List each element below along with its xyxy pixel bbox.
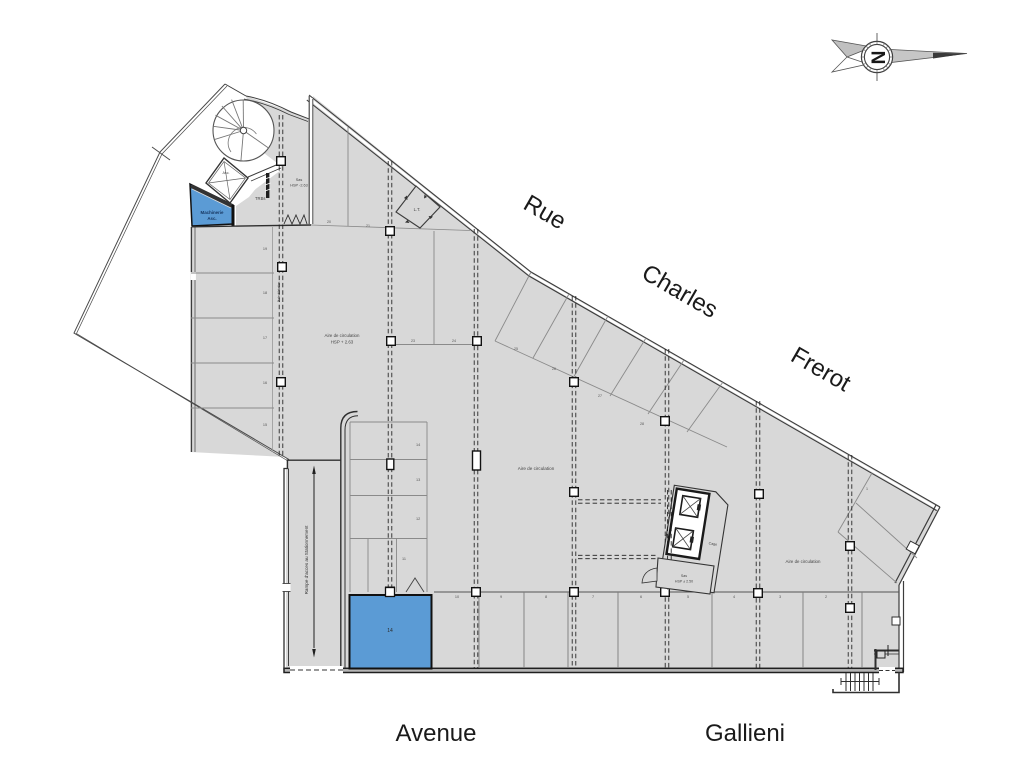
svg-text:25: 25 — [514, 347, 518, 351]
svg-text:Asc.: Asc. — [223, 171, 230, 175]
svg-text:Jt de dilatation: Jt de dilatation — [277, 281, 281, 302]
svg-text:5: 5 — [687, 595, 689, 599]
svg-text:24: 24 — [452, 339, 456, 343]
svg-text:Rue: Rue — [519, 190, 571, 235]
svg-text:7: 7 — [592, 595, 594, 599]
svg-text:28: 28 — [640, 422, 644, 426]
svg-text:Rampe d'acces au Stationnem: Rampe d'acces au Stationnement — [304, 525, 309, 595]
svg-text:19: 19 — [263, 247, 267, 251]
svg-text:4: 4 — [733, 595, 735, 599]
svg-text:Gallieni: Gallieni — [705, 720, 785, 747]
svg-text:14: 14 — [416, 443, 420, 447]
svg-text:26: 26 — [552, 367, 556, 371]
svg-text:1: 1 — [866, 487, 868, 491]
svg-text:3: 3 — [779, 595, 781, 599]
svg-text:18: 18 — [263, 291, 267, 295]
svg-text:27: 27 — [598, 394, 602, 398]
svg-text:Sas: Sas — [681, 574, 687, 578]
svg-text:HSP + 2.63: HSP + 2.63 — [331, 340, 354, 345]
svg-text:Aire de circulation: Aire de circulation — [518, 466, 555, 471]
svg-text:10: 10 — [455, 595, 459, 599]
svg-text:Asc.: Asc. — [207, 216, 216, 221]
svg-text:23: 23 — [411, 339, 415, 343]
svg-text:Sas: Sas — [296, 178, 303, 182]
svg-text:N: N — [867, 51, 888, 65]
svg-text:21: 21 — [366, 224, 370, 228]
svg-text:Frerot: Frerot — [786, 342, 855, 398]
svg-text:9: 9 — [500, 595, 502, 599]
svg-text:Aire de circulation: Aire de circulation — [325, 333, 360, 338]
svg-text:TRBs: TRBs — [255, 196, 265, 201]
svg-text:17: 17 — [263, 336, 267, 340]
svg-text:16: 16 — [263, 381, 267, 385]
svg-text:Machinerie: Machinerie — [201, 210, 224, 215]
svg-text:11: 11 — [402, 557, 406, 561]
svg-text:14: 14 — [387, 628, 393, 634]
svg-text:15: 15 — [263, 423, 267, 427]
svg-text:Aire de circulation: Aire de circulation — [786, 559, 821, 564]
svg-text:6: 6 — [640, 595, 642, 599]
svg-text:20: 20 — [327, 220, 331, 224]
svg-text:HSP ± 2.50: HSP ± 2.50 — [675, 580, 693, 584]
svg-text:2: 2 — [825, 595, 827, 599]
svg-text:12: 12 — [416, 517, 420, 521]
svg-text:13: 13 — [416, 478, 420, 482]
svg-text:Charles: Charles — [637, 259, 722, 324]
svg-text:HSP -2.63: HSP -2.63 — [290, 184, 307, 188]
svg-text:8: 8 — [545, 595, 547, 599]
svg-text:Avenue: Avenue — [396, 720, 477, 747]
svg-text:L.T.: L.T. — [414, 207, 421, 212]
